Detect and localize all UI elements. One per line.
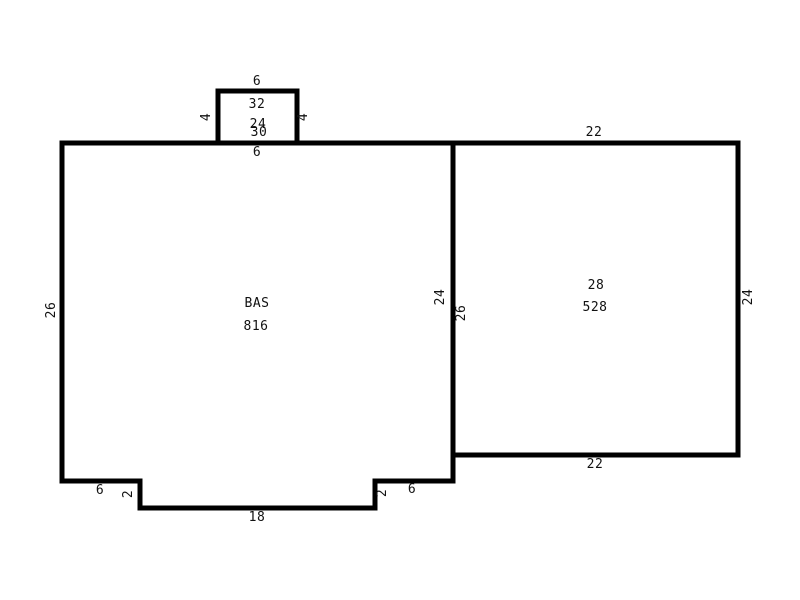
floor-plan-canvas: 6 32 24 4 4 30 6 BAS 816 26 24 26 22 28 … — [0, 0, 800, 600]
dim-bottom-right-step: 2 — [375, 489, 390, 497]
right-area-label: 528 — [583, 300, 608, 315]
right-name-label: 28 — [588, 278, 605, 293]
dim-porch-right: 4 — [296, 113, 311, 121]
dim-bottom-center: 18 — [249, 510, 266, 525]
dim-main-top-segment: 6 — [253, 145, 261, 160]
dim-bottom-left-step: 2 — [121, 490, 136, 498]
dim-porch-left: 4 — [199, 113, 214, 121]
dim-right-bottom: 22 — [587, 457, 604, 472]
sketch-page: 6 32 24 4 4 30 6 BAS 816 26 24 26 22 28 … — [0, 0, 800, 600]
main-area-label: 816 — [244, 319, 269, 334]
dim-main-top: 30 — [251, 125, 268, 140]
main-name-label: BAS — [245, 296, 270, 311]
dim-main-left: 26 — [44, 302, 59, 319]
dim-bottom-left-segment: 6 — [96, 483, 104, 498]
dim-divider-right: 26 — [454, 305, 469, 322]
dim-right-top: 22 — [586, 125, 603, 140]
dim-bottom-right-segment: 6 — [408, 482, 416, 497]
dim-porch-top: 6 — [253, 74, 261, 89]
porch-name-label: 32 — [249, 97, 266, 112]
dim-divider-left: 24 — [433, 289, 448, 306]
right-area-outline — [453, 143, 738, 455]
dim-right-right: 24 — [741, 289, 756, 306]
